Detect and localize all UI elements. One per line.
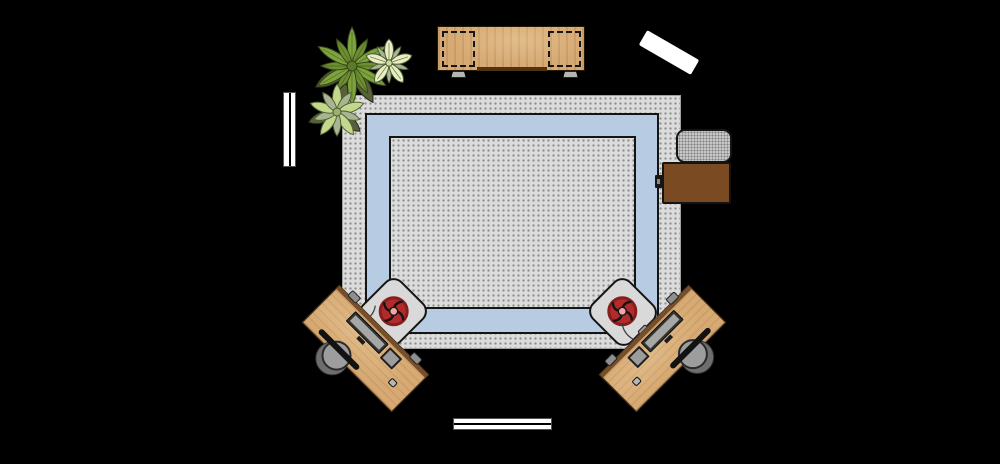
window-bottom[interactable] [453,418,552,430]
console-foot-left [451,71,466,78]
side-table[interactable] [662,162,731,204]
floor-plan-canvas [0,0,1000,464]
window-left[interactable] [283,92,296,167]
door[interactable] [639,30,699,75]
rug-inner-field [389,136,636,309]
console-base-shadow [477,67,547,71]
console-door-panel-left [442,31,475,67]
table-clamp [655,175,663,188]
small-plant[interactable] [303,78,371,146]
mouse[interactable] [631,376,642,387]
mouse[interactable] [387,377,398,388]
console-door-panel-right [548,31,581,67]
console-foot-right [563,71,578,78]
media-console[interactable] [437,26,585,71]
ottoman[interactable] [676,129,732,163]
